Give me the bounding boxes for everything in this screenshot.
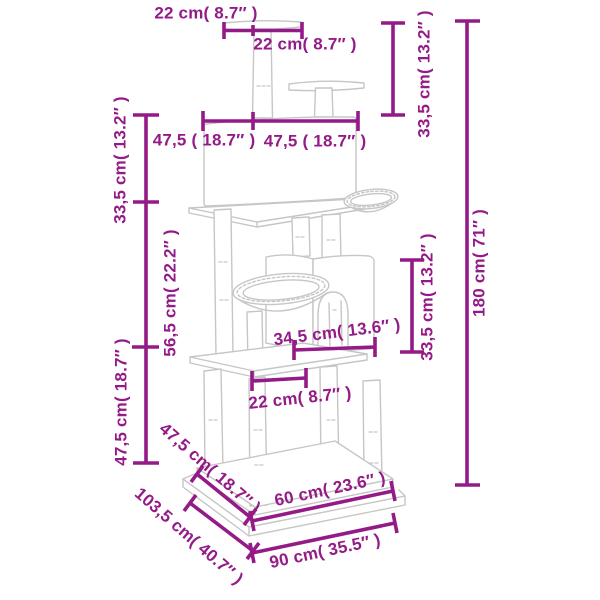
upper-shelf: [289, 81, 364, 117]
dim-label-top-platform-left: 22 cm( 8.7″ ): [154, 5, 257, 22]
dim-label-lower-section-height: 47,5 cm( 18.7″ ): [113, 338, 130, 466]
dim-label-condo-width-left: 47,5 ( 18.7″ ): [153, 132, 256, 149]
dim-label-top-platform-right: 22 cm( 8.7″ ): [253, 36, 356, 53]
dim-label-condo-section-height: 33,5 cm( 13.2″ ): [112, 96, 129, 224]
cat-tree-drawing: [183, 21, 405, 536]
diagram-canvas: [0, 0, 600, 600]
dim-label-middle-section-height: 56,5 cm( 22.2″ ): [162, 229, 179, 357]
dim-label-condo-width-right: 47,5 ( 18.7″ ): [264, 133, 367, 150]
dim-label-house-height: 33,5 cm( 13.2″ ): [419, 233, 436, 361]
dim-label-top-section-height: 33,5 cm( 13.2″ ): [416, 10, 433, 138]
dim-line-top-section-height: [381, 23, 405, 115]
dimension-diagram: 22 cm( 8.7″ ) 22 cm( 8.7″ ) 33,5 cm( 13.…: [0, 0, 600, 600]
dim-label-total-height: 180 cm( 71″ ): [471, 209, 488, 317]
dim-line-left-heights: [132, 115, 159, 463]
